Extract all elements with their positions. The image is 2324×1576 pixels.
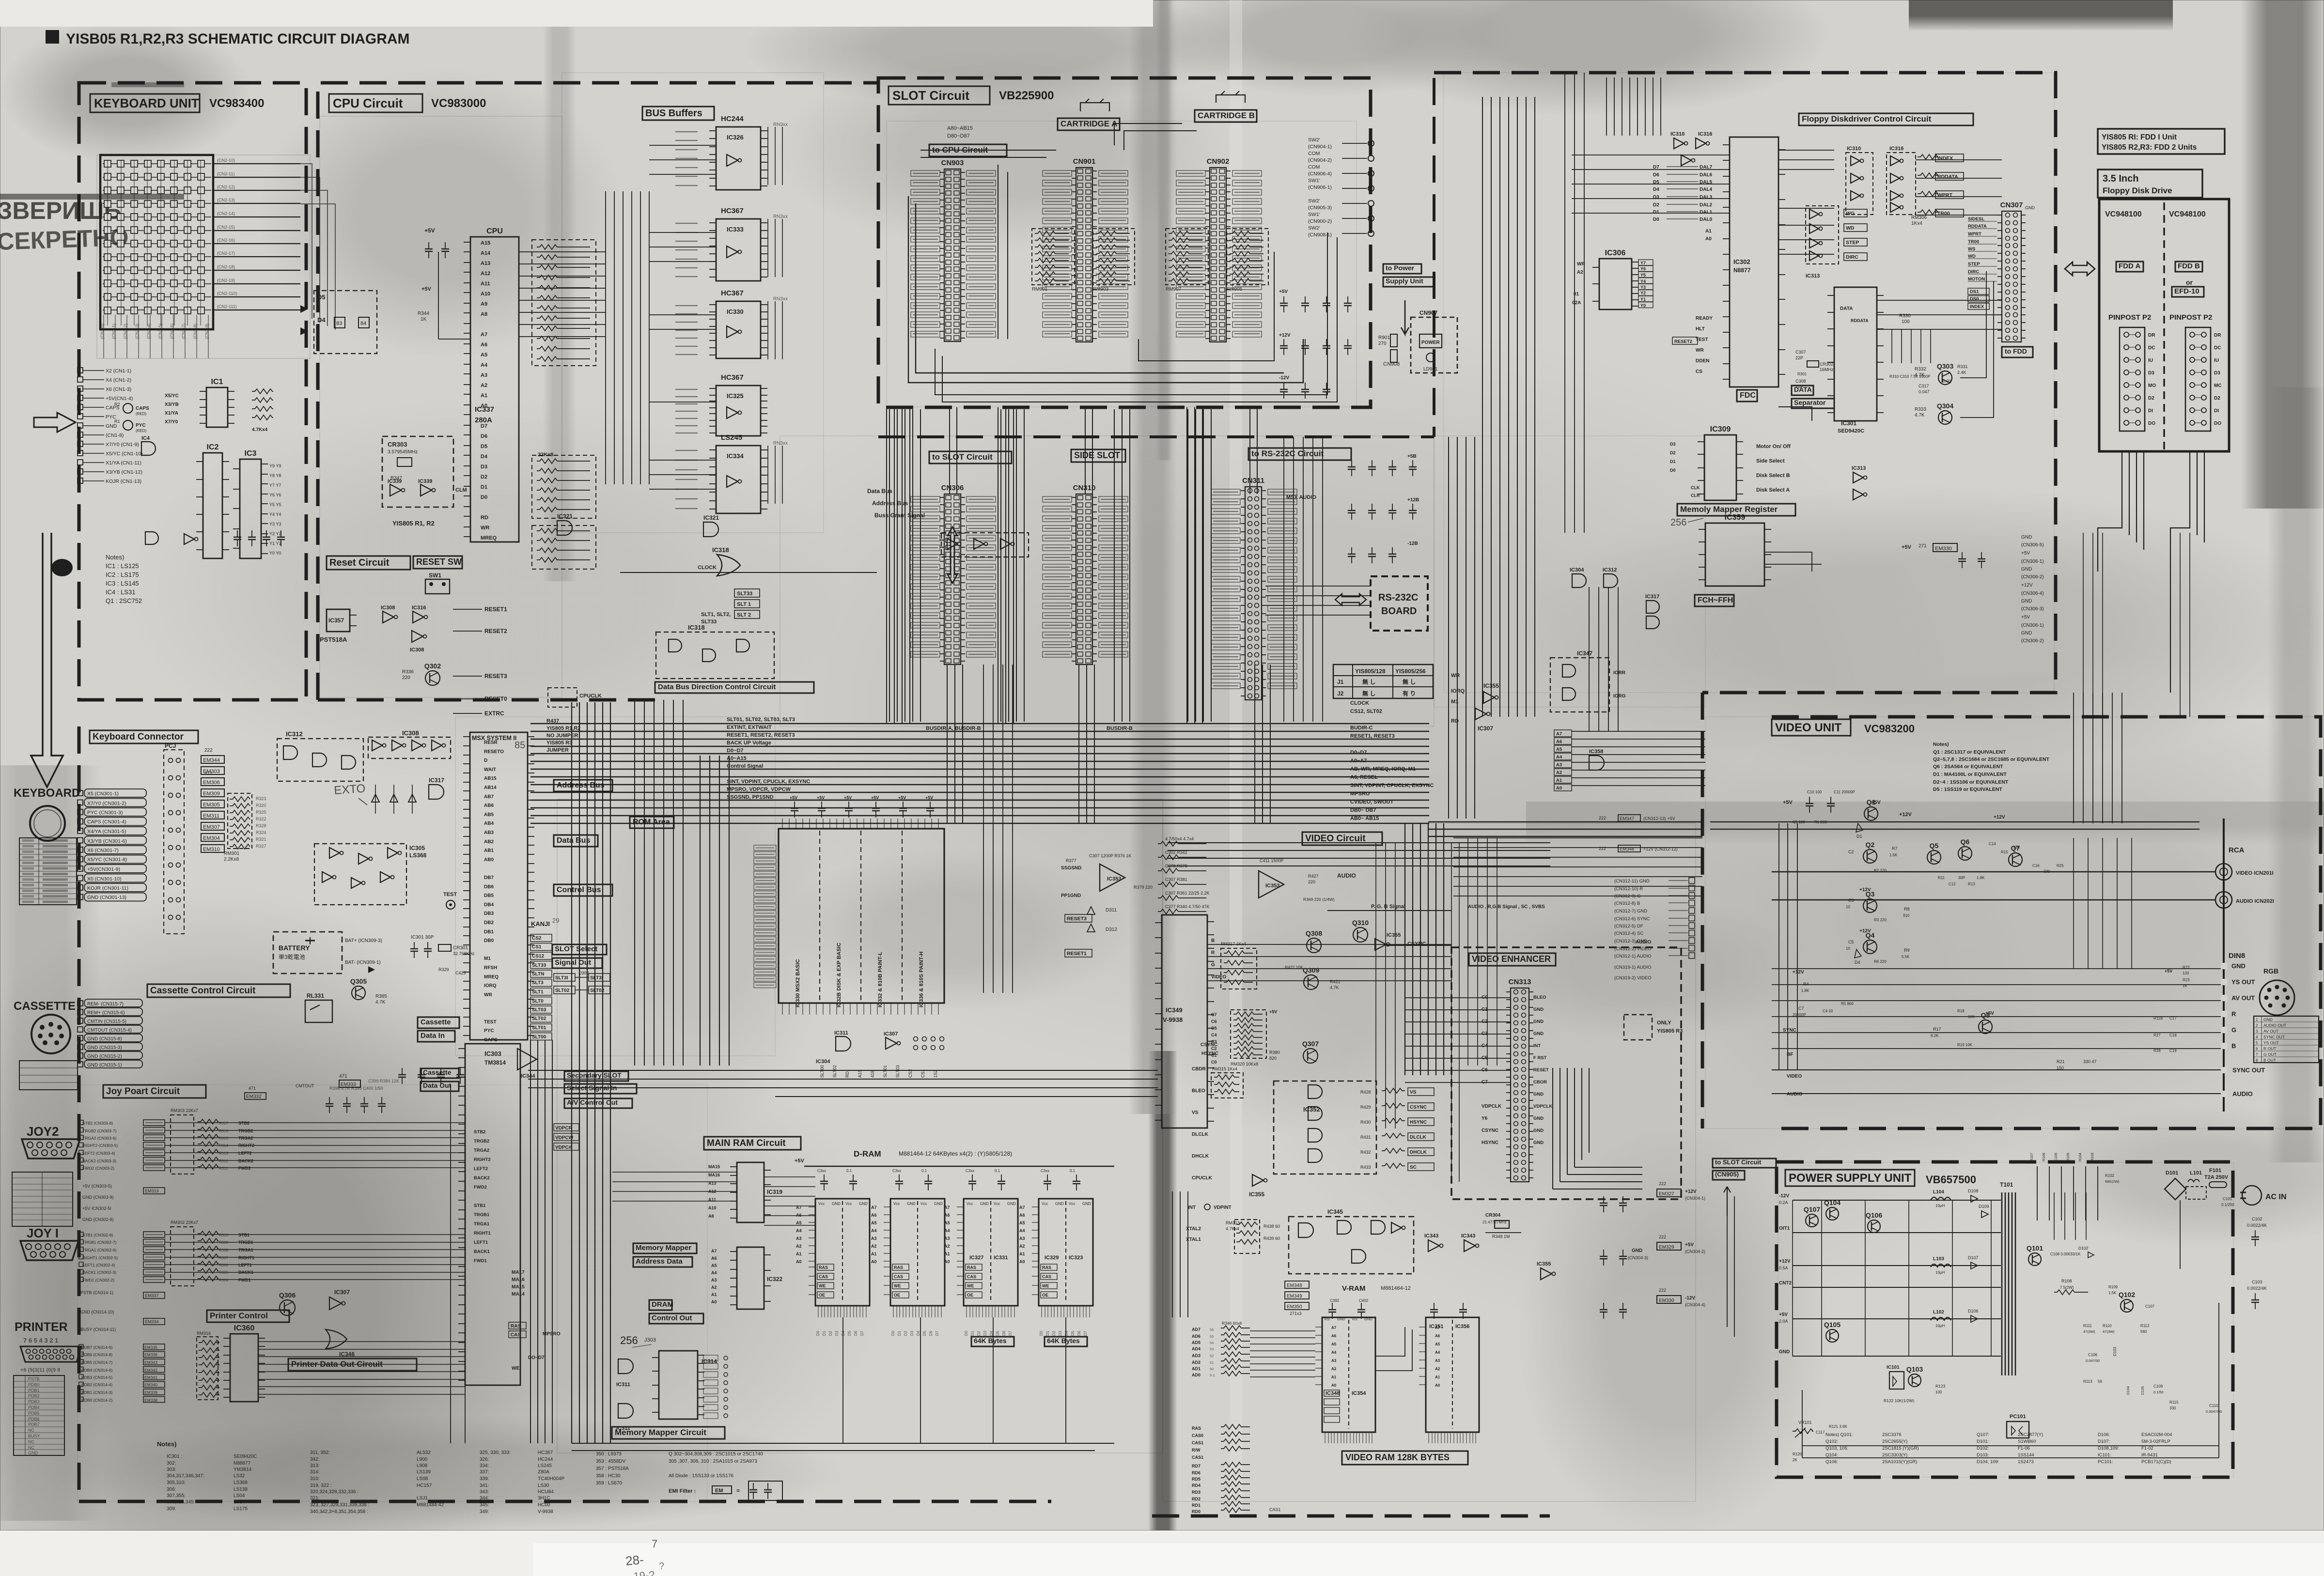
svg-text:R317: R317 xyxy=(219,1121,229,1126)
svg-text:+12V: +12V xyxy=(1685,1189,1697,1194)
svg-text:A2: A2 xyxy=(1435,1367,1440,1371)
svg-text:C102: C102 xyxy=(2252,1217,2262,1221)
svg-text:(RED): (RED) xyxy=(136,412,147,416)
svg-text:X4/YA (CN301-5): X4/YA (CN301-5) xyxy=(87,829,126,834)
svg-text:D101:: D101: xyxy=(1977,1439,1989,1444)
svg-text:J302: J302 xyxy=(579,971,589,975)
svg-text:HC244: HC244 xyxy=(721,115,744,123)
svg-text:PDB3 (CN314-5): PDB3 (CN314-5) xyxy=(81,1375,112,1380)
svg-text:ONLY: ONLY xyxy=(1657,1020,1671,1026)
svg-text:R431: R431 xyxy=(1360,1135,1371,1140)
svg-text:MA15: MA15 xyxy=(512,1284,525,1290)
svg-text:Vcc: Vcc xyxy=(920,1202,927,1206)
svg-text:A3: A3 xyxy=(944,1236,950,1241)
svg-text:単3乾電池: 単3乾電池 xyxy=(279,954,305,960)
svg-text:TRGB2: TRGB2 xyxy=(238,1128,253,1133)
svg-text:IC1: IC1 xyxy=(211,378,223,386)
svg-text:D106: D106 xyxy=(1968,1309,1979,1313)
svg-text:SLT 2: SLT 2 xyxy=(737,612,751,618)
svg-text:R323: R323 xyxy=(256,796,266,801)
svg-text:D6: D6 xyxy=(1002,1330,1006,1336)
svg-text:C18: C18 xyxy=(2169,1033,2177,1037)
svg-text:STB1: STB1 xyxy=(474,1203,486,1208)
svg-text:D7: D7 xyxy=(935,1330,939,1336)
svg-text:D102: D102 xyxy=(2078,1246,2089,1251)
svg-text:Control Out: Control Out xyxy=(652,1314,692,1322)
svg-text:LS138: LS138 xyxy=(234,1487,248,1492)
svg-text:AB, WR, MREQ, IORQ, M1: AB, WR, MREQ, IORQ, M1 xyxy=(1350,766,1416,772)
svg-text:R312: R312 xyxy=(219,1159,229,1163)
svg-text:(CN304-3): (CN304-3) xyxy=(1628,1255,1648,1260)
svg-text:RN3xx: RN3xx xyxy=(773,122,788,127)
svg-text:CAS: CAS xyxy=(967,1274,976,1279)
svg-text:52: 52 xyxy=(1210,1354,1214,1358)
svg-text:RIGHT1 (CN302-5): RIGHT1 (CN302-5) xyxy=(82,1255,118,1260)
svg-text:D312: D312 xyxy=(1106,927,1117,932)
svg-text:PDB4: PDB4 xyxy=(28,1405,40,1410)
svg-text:(CN312-5) DF: (CN312-5) DF xyxy=(1614,924,1643,929)
svg-text:(CN306-3): (CN306-3) xyxy=(2021,606,2044,612)
svg-text:無 し: 無 し xyxy=(1403,678,1416,685)
svg-text:IC322: IC322 xyxy=(767,1276,782,1282)
svg-text:CPUCLK: CPUCLK xyxy=(579,693,602,699)
svg-text:VIDEO: VIDEO xyxy=(1211,974,1226,980)
svg-text:Y2: Y2 xyxy=(1640,291,1646,295)
svg-text:A/V Control Out: A/V Control Out xyxy=(567,1098,618,1106)
svg-text:C307 R381: C307 R381 xyxy=(1165,877,1187,882)
svg-text:GND: GND xyxy=(859,1202,868,1206)
svg-text:Q307: Q307 xyxy=(1302,1040,1319,1048)
svg-text:21.47727MHz: 21.47727MHz xyxy=(1482,1220,1507,1224)
svg-text:CAS: CAS xyxy=(819,1274,828,1279)
svg-text:Q103: Q103 xyxy=(1906,1365,1923,1373)
svg-text:16MHz: 16MHz xyxy=(1820,367,1834,372)
svg-text:Q104: Q104 xyxy=(1824,1199,1840,1206)
svg-text:D4: D4 xyxy=(1855,960,1860,965)
svg-text:Y0: Y0 xyxy=(1640,303,1646,308)
svg-text:0.1: 0.1 xyxy=(846,1169,852,1173)
svg-text:D0: D0 xyxy=(891,1330,895,1336)
svg-text:SW1': SW1' xyxy=(1308,212,1320,217)
svg-text:22P: 22P xyxy=(1795,355,1803,360)
svg-text:GND (CN315-8): GND (CN315-8) xyxy=(87,1036,122,1042)
svg-text:DB0~ DB7: DB0~ DB7 xyxy=(1350,807,1376,813)
svg-text:RAS: RAS xyxy=(511,1324,521,1329)
svg-text:Vcc: Vcc xyxy=(1324,1317,1330,1321)
svg-text:DB2: DB2 xyxy=(484,920,494,926)
svg-text:V-9938: V-9938 xyxy=(1163,1016,1183,1023)
svg-text:+5V: +5V xyxy=(871,795,879,800)
svg-text:TRGA2: TRGA2 xyxy=(238,1136,253,1141)
svg-text:RESET1: RESET1 xyxy=(1067,951,1087,957)
svg-text:VB657500: VB657500 xyxy=(1926,1174,1976,1186)
svg-text:A5: A5 xyxy=(871,1221,877,1225)
svg-text:(CN312-13) +5V: (CN312-13) +5V xyxy=(1643,816,1675,821)
svg-text:+5V: +5V xyxy=(1779,1312,1788,1317)
svg-text:LS245: LS245 xyxy=(721,433,742,442)
svg-text:EM350: EM350 xyxy=(1287,1304,1302,1310)
svg-text:AUDIO: AUDIO xyxy=(1337,872,1356,879)
svg-text:RAS: RAS xyxy=(1042,1265,1051,1270)
svg-text:Y9 Y9: Y9 Y9 xyxy=(269,464,281,468)
svg-text:to FDD: to FDD xyxy=(2005,347,2027,355)
svg-text:(CN306-4): (CN306-4) xyxy=(2021,591,2044,596)
svg-text:Control Signal: Control Signal xyxy=(727,763,763,769)
svg-text:C117: C117 xyxy=(1816,1430,1825,1435)
svg-text:D7: D7 xyxy=(481,423,487,429)
svg-text:C3xx: C3xx xyxy=(1041,1169,1049,1173)
svg-text:SLT33: SLT33 xyxy=(737,591,752,597)
svg-text:FDD B: FDD B xyxy=(2178,262,2200,270)
svg-text:D3: D3 xyxy=(481,464,487,470)
svg-text:GND: GND xyxy=(832,1202,841,1206)
svg-text:HSYNC: HSYNC xyxy=(1482,1140,1498,1145)
svg-text:有 り: 有 り xyxy=(1403,690,1416,697)
svg-text:to SLOT Circuit: to SLOT Circuit xyxy=(932,452,993,462)
svg-text:to SLOT Circuit: to SLOT Circuit xyxy=(1715,1159,1762,1166)
svg-text:HC367: HC367 xyxy=(538,1450,553,1455)
svg-text:CAPS: CAPS xyxy=(136,406,149,411)
svg-text:EMI Filter :: EMI Filter : xyxy=(669,1488,696,1494)
svg-text:無 し: 無 し xyxy=(1362,678,1375,685)
svg-text:D3: D3 xyxy=(1653,195,1659,200)
svg-text:BLEO: BLEO xyxy=(1192,1088,1205,1094)
svg-text:EM344: EM344 xyxy=(203,757,220,763)
svg-text:R4: R4 xyxy=(1803,982,1809,987)
svg-text:02A: 02A xyxy=(1572,300,1581,306)
svg-text:CAPS (CN301-4): CAPS (CN301-4) xyxy=(87,819,126,825)
svg-text:WE: WE xyxy=(819,1283,826,1288)
svg-text:CR302: CR302 xyxy=(1820,362,1833,367)
svg-text:C11 20000P: C11 20000P xyxy=(1834,790,1855,794)
svg-text:CR303: CR303 xyxy=(388,441,407,448)
svg-text:D1: D1 xyxy=(1856,834,1862,839)
svg-text:Buss Grant Signal: Buss Grant Signal xyxy=(874,512,925,519)
svg-text:IC331: IC331 xyxy=(994,1255,1008,1261)
svg-text:MA15: MA15 xyxy=(708,1164,720,1169)
svg-text:ROM Area: ROM Area xyxy=(633,818,670,826)
svg-text:RD5: RD5 xyxy=(1192,1477,1201,1482)
svg-text:CVIDEO, SWOUT: CVIDEO, SWOUT xyxy=(1350,799,1394,805)
svg-text:+12V: +12V xyxy=(1779,1259,1791,1264)
svg-text:J2: J2 xyxy=(1337,690,1344,697)
svg-text:Vcc: Vcc xyxy=(845,1202,852,1206)
svg-text:PCJ: PCJ xyxy=(165,742,176,749)
svg-text:CSYNC: CSYNC xyxy=(1407,941,1426,947)
svg-text:GND: GND xyxy=(1533,1140,1544,1145)
svg-text:D0: D0 xyxy=(964,1330,968,1336)
svg-text:RESET1, RESET3: RESET1, RESET3 xyxy=(1350,733,1395,739)
svg-text:IC355: IC355 xyxy=(1249,1191,1264,1198)
svg-text:D104, 109:: D104, 109: xyxy=(1977,1459,1999,1465)
svg-text:D102:: D102: xyxy=(1977,1446,1989,1451)
svg-text:RD6: RD6 xyxy=(1192,1470,1201,1475)
svg-text:A0: A0 xyxy=(1331,1383,1337,1388)
svg-text:SLT3: SLT3 xyxy=(532,980,544,986)
svg-text:(CN304-4): (CN304-4) xyxy=(1685,1302,1705,1307)
svg-text:VIDEO ENHANCER: VIDEO ENHANCER xyxy=(1472,954,1551,964)
svg-text:D6: D6 xyxy=(481,433,487,439)
svg-text:CLK: CLK xyxy=(1691,485,1700,490)
svg-text:Secondary SLOT: Secondary SLOT xyxy=(567,1071,622,1079)
svg-text:DB5: DB5 xyxy=(484,893,494,898)
svg-text:LEFT1 (CN302-4): LEFT1 (CN302-4) xyxy=(82,1263,115,1267)
svg-text:2SC3303(Y): 2SC3303(Y) xyxy=(1882,1452,1907,1458)
svg-text:DAL3: DAL3 xyxy=(1700,195,1713,200)
svg-text:Motor On/ Off: Motor On/ Off xyxy=(1756,444,1791,449)
svg-text:R308: R308 xyxy=(219,1248,229,1252)
svg-text:D0: D0 xyxy=(1039,1330,1044,1336)
svg-text:GND: GND xyxy=(1533,1007,1544,1012)
svg-text:GND: GND xyxy=(28,1451,38,1455)
svg-text:R122 10K(1/2W): R122 10K(1/2W) xyxy=(1884,1398,1914,1403)
svg-text:D108,109:: D108,109: xyxy=(2098,1446,2119,1451)
svg-text:CAS: CAS xyxy=(511,1332,521,1338)
svg-text:R315: R315 xyxy=(219,1136,229,1141)
svg-text:2K: 2K xyxy=(1793,1458,1797,1462)
svg-text:6: 6 xyxy=(2256,1047,2258,1051)
svg-text:LS368: LS368 xyxy=(409,852,427,859)
svg-text:C105: C105 xyxy=(2054,1153,2058,1161)
svg-text:ЗВЕРИШЬ: ЗВЕРИШЬ xyxy=(0,197,121,224)
svg-text:GND: GND xyxy=(1632,1248,1642,1253)
svg-text:EM330: EM330 xyxy=(1659,1298,1674,1303)
svg-text:SLT33: SLT33 xyxy=(532,963,546,968)
svg-text:0.0047/50: 0.0047/50 xyxy=(2206,1409,2222,1414)
svg-text:REM- (CN315-7): REM- (CN315-7) xyxy=(87,1002,124,1007)
svg-text:Q103, 105:: Q103, 105: xyxy=(1825,1446,1848,1451)
svg-text:IC311: IC311 xyxy=(616,1382,630,1388)
svg-text:IC316: IC316 xyxy=(1889,146,1903,152)
svg-text:TRGB2 (CN303-7): TRGB2 (CN303-7) xyxy=(82,1128,117,1133)
svg-text:Q6: Q6 xyxy=(1961,838,1970,846)
svg-text:D106:: D106: xyxy=(2098,1432,2110,1437)
svg-text:A6: A6 xyxy=(711,1256,717,1261)
svg-text:A5: A5 xyxy=(711,1263,717,1268)
svg-text:(CN2-10): (CN2-10) xyxy=(217,158,235,163)
svg-text:R102: R102 xyxy=(2105,1174,2115,1178)
svg-text:BACK1 (CN302-3): BACK1 (CN302-3) xyxy=(82,1270,116,1275)
svg-text:A6: A6 xyxy=(481,342,487,348)
svg-text:353 : 4558DV: 353 : 4558DV xyxy=(596,1459,625,1464)
svg-text:SLT00: SLT00 xyxy=(820,1065,825,1078)
svg-text:LSJ1: LSJ1 xyxy=(417,1496,428,1501)
svg-text:R8: R8 xyxy=(1904,907,1910,912)
svg-text:Y4: Y4 xyxy=(1640,279,1646,284)
svg-text:A7: A7 xyxy=(944,1205,950,1210)
svg-text:R23: R23 xyxy=(2183,978,2190,982)
svg-text:Reset Circuit: Reset Circuit xyxy=(329,557,390,568)
svg-text:R2: R2 xyxy=(114,402,120,407)
svg-text:WR: WR xyxy=(481,525,489,531)
svg-text:MPSRO, VDPCR, VDPCW: MPSRO, VDPCR, VDPCW xyxy=(727,787,791,792)
svg-text:C110: C110 xyxy=(2209,1404,2218,1408)
svg-text:AB0~ AB15: AB0~ AB15 xyxy=(1350,816,1379,821)
svg-text:(CN904-2): (CN904-2) xyxy=(1308,157,1332,163)
svg-text:Y2 Y2: Y2 Y2 xyxy=(269,531,281,536)
svg-text:D2: D2 xyxy=(481,474,487,480)
svg-text:GND: GND xyxy=(907,1202,916,1206)
svg-text:IORG: IORG xyxy=(1613,694,1626,699)
svg-text:IC312: IC312 xyxy=(1603,567,1617,573)
svg-text:R13: R13 xyxy=(1968,882,1975,886)
svg-text:1Kx4: 1Kx4 xyxy=(1911,221,1922,226)
svg-text:SSGSND: SSGSND xyxy=(1061,865,1081,871)
svg-text:DATA: DATA xyxy=(1840,306,1853,311)
svg-text:AB7: AB7 xyxy=(484,794,494,800)
svg-text:FWD2 (CN303-2): FWD2 (CN303-2) xyxy=(82,1166,114,1171)
svg-text:A3: A3 xyxy=(481,372,487,378)
svg-text:CPU: CPU xyxy=(486,227,503,235)
svg-text:IC310: IC310 xyxy=(1847,146,1861,152)
svg-text:A5: A5 xyxy=(796,1221,802,1225)
svg-text:TEST: TEST xyxy=(443,892,457,897)
svg-text:IC321: IC321 xyxy=(703,514,719,521)
svg-text:(CN319-1) AUDIO: (CN319-1) AUDIO xyxy=(1614,965,1652,970)
svg-text:A0: A0 xyxy=(1705,236,1712,242)
svg-text:AUDIO: AUDIO xyxy=(2232,1090,2253,1097)
svg-text:Q303: Q303 xyxy=(1937,362,1953,370)
svg-text:INDEX: INDEX xyxy=(1937,155,1953,161)
svg-text:10: 10 xyxy=(1846,905,1850,909)
svg-text:SINT, VDPINT, CPUCLK, EXSYNC: SINT, VDPINT, CPUCLK, EXSYNC xyxy=(1350,783,1434,788)
svg-text:A1: A1 xyxy=(1435,1375,1440,1379)
svg-text:A4: A4 xyxy=(1331,1350,1337,1355)
svg-text:+5V: +5V xyxy=(925,795,933,800)
svg-text:D2: D2 xyxy=(2214,396,2220,401)
svg-text:256: 256 xyxy=(620,1334,638,1346)
svg-text:COM: COM xyxy=(1308,151,1320,156)
svg-text:C5: C5 xyxy=(1211,1026,1217,1031)
svg-text:RESET0: RESET0 xyxy=(484,695,507,702)
svg-text:CS2: CS2 xyxy=(532,936,542,941)
svg-text:EM334: EM334 xyxy=(145,1319,159,1324)
svg-text:CSYNC: CSYNC xyxy=(1410,1105,1427,1110)
svg-text:C12: C12 xyxy=(1949,882,1956,886)
svg-text:IC359: IC359 xyxy=(1725,513,1746,522)
svg-text:Q1 : 2SC1317 or EQUIVA: Q1 : 2SC1317 or EQUIVALENT xyxy=(1933,749,2006,755)
svg-text:PDB6: PDB6 xyxy=(28,1417,40,1421)
svg-text:L101: L101 xyxy=(2190,1170,2202,1176)
svg-text:A5: A5 xyxy=(1556,747,1562,752)
svg-text:A15: A15 xyxy=(858,1070,862,1078)
svg-text:R336: R336 xyxy=(402,669,414,675)
svg-text:EM340: EM340 xyxy=(144,1382,157,1387)
svg-text:LD901: LD901 xyxy=(1423,367,1438,372)
svg-text:Vcc: Vcc xyxy=(994,1202,1000,1206)
svg-text:X3/YB (CN1-12): X3/YB (CN1-12) xyxy=(106,469,142,475)
svg-text:R377: R377 xyxy=(1066,858,1076,863)
svg-text:68K(2W): 68K(2W) xyxy=(2105,1179,2120,1184)
svg-text:1K: 1K xyxy=(421,317,427,322)
svg-text:IC303: IC303 xyxy=(484,1050,501,1057)
svg-text:(CN306-5): (CN306-5) xyxy=(2021,542,2044,548)
svg-text:RESETO: RESETO xyxy=(484,749,504,755)
svg-text:Y3 Y3: Y3 Y3 xyxy=(269,522,281,526)
svg-text:IC343: IC343 xyxy=(1424,1233,1438,1239)
svg-text:GND: GND xyxy=(1007,1202,1016,1206)
svg-text:A1: A1 xyxy=(481,393,487,399)
svg-text:RN3xx: RN3xx xyxy=(773,214,788,219)
svg-text:820: 820 xyxy=(1269,1056,1277,1061)
svg-text:1.8K: 1.8K xyxy=(1977,876,1985,880)
svg-text:RESET: RESET xyxy=(1533,1067,1549,1073)
svg-text:D0: D0 xyxy=(1653,217,1659,222)
svg-text:5-1: 5-1 xyxy=(1210,1373,1215,1377)
svg-text:54: 54 xyxy=(1210,1341,1214,1345)
svg-text:R306: R306 xyxy=(219,1263,229,1267)
svg-text:+6 (5(3(11 (0(9 8: +6 (5(3(11 (0(9 8 xyxy=(20,1367,60,1373)
svg-text:A11: A11 xyxy=(481,281,490,287)
svg-text:IC306: IC306 xyxy=(1605,249,1626,257)
svg-text:WR: WR xyxy=(484,992,492,998)
svg-text:F1-06: F1-06 xyxy=(2018,1446,2030,1451)
svg-text:X6 (CN1-3): X6 (CN1-3) xyxy=(106,386,131,392)
svg-text:1: 1 xyxy=(2256,1018,2258,1022)
svg-text:MC: MC xyxy=(2214,383,2222,388)
svg-text:RD1: RD1 xyxy=(1192,1503,1201,1508)
svg-text:D108: D108 xyxy=(1968,1189,1979,1193)
svg-text:471: 471 xyxy=(249,1086,256,1091)
svg-text:910: 910 xyxy=(1903,913,1910,918)
svg-text:EM342: EM342 xyxy=(144,1368,157,1373)
svg-text:R/W: R/W xyxy=(1192,1448,1201,1452)
svg-text:DHCLK: DHCLK xyxy=(1410,1150,1427,1155)
svg-text:JOY I: JOY I xyxy=(27,1226,59,1240)
svg-text:GND (CN303-9): GND (CN303-9) xyxy=(82,1195,114,1200)
svg-text:50: 50 xyxy=(1210,1367,1214,1371)
svg-text:VC948100: VC948100 xyxy=(2169,210,2206,218)
svg-text:222: 222 xyxy=(1599,816,1606,820)
svg-text:R428: R428 xyxy=(1360,1090,1371,1095)
svg-text:Y7: Y7 xyxy=(1640,261,1646,265)
svg-text:LS139: LS139 xyxy=(417,1469,431,1475)
svg-text:AD6: AD6 xyxy=(1192,1334,1201,1339)
svg-text:A1: A1 xyxy=(796,1252,802,1256)
svg-text:A5: A5 xyxy=(1435,1342,1440,1346)
svg-text:A6, RESEL: A6, RESEL xyxy=(1350,774,1378,780)
svg-text:+5V(CN301-9): +5V(CN301-9) xyxy=(87,866,120,872)
svg-text:VDPCLK: VDPCLK xyxy=(1482,1104,1502,1109)
svg-text:5M-3-02FRLP: 5M-3-02FRLP xyxy=(2141,1439,2170,1444)
svg-text:無 し: 無 し xyxy=(1362,690,1375,697)
svg-text:RM302 22Kx7: RM302 22Kx7 xyxy=(171,1220,198,1225)
svg-text:(CN312-11) GND: (CN312-11) GND xyxy=(1614,879,1650,884)
svg-text:SLOT Circuit: SLOT Circuit xyxy=(892,88,969,103)
svg-text:FWD2: FWD2 xyxy=(238,1166,251,1171)
svg-text:SW2': SW2' xyxy=(1308,137,1320,143)
svg-text:HC00: HC00 xyxy=(538,1502,550,1508)
svg-text:AD5: AD5 xyxy=(1192,1340,1201,1345)
svg-text:RM316: RM316 xyxy=(197,1331,211,1336)
svg-text:AB3: AB3 xyxy=(484,830,494,835)
svg-text:A3: A3 xyxy=(1435,1359,1440,1363)
svg-text:C399 R384 12K: C399 R384 12K xyxy=(368,1079,399,1083)
svg-text:+5V: +5V xyxy=(421,286,432,292)
svg-text:R7: R7 xyxy=(1892,846,1898,851)
svg-text:SYNC OUT: SYNC OUT xyxy=(2232,1066,2265,1074)
svg-text:(CN312-8) B: (CN312-8) B xyxy=(1614,901,1640,906)
svg-text:RM306: RM306 xyxy=(1911,215,1927,220)
svg-text:IC330 MSX2 BASIC: IC330 MSX2 BASIC xyxy=(795,959,801,1007)
svg-text:SLT01, SLT02, SLT03, SLT3: SLT01, SLT02, SLT03, SLT3 xyxy=(727,717,795,723)
svg-text:SLT03: SLT03 xyxy=(532,1007,546,1013)
svg-text:1.5K: 1.5K xyxy=(2108,1291,2117,1295)
svg-text:0.0022/4K: 0.0022/4K xyxy=(2247,1223,2267,1228)
svg-text:R330: R330 xyxy=(1899,313,1911,319)
svg-text:+12V: +12V xyxy=(1899,812,1912,818)
svg-text:CASSETTE: CASSETTE xyxy=(14,1000,76,1013)
